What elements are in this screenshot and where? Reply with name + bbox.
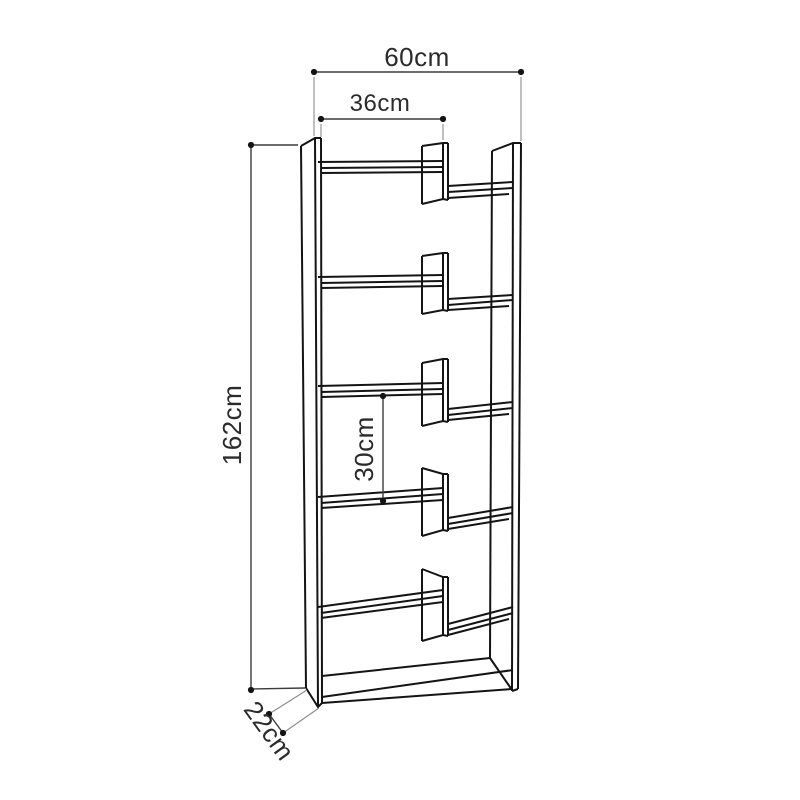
height-connector-bottom [251,688,305,689]
left-shelf-2 [318,275,443,288]
right-shelf-3 [448,402,513,420]
depth-extension-front [283,708,319,733]
right-shelf-5 [448,607,513,635]
left-panel-outer-edge [301,146,306,688]
bookcase-dimension-diagram: 60cm 36cm 162cm 30cm [0,0,800,800]
middle-dividers [422,143,448,641]
right-shelf-4 [448,507,513,529]
divider-1 [422,143,448,204]
divider-2 [422,253,448,314]
dimension-drawing-canvas: 60cm 36cm 162cm 30cm [0,0,800,800]
right-shelf-2 [448,295,513,310]
bottom-shelf [322,658,513,703]
width-dimension-label: 60cm [384,42,450,72]
height-dimension-label: 162cm [217,385,247,466]
left-shelf-4 [318,488,443,508]
left-panel-top-edge [301,138,321,146]
bottom-shelf-bottom-front-edge [322,689,512,703]
width-endpoint-dot-left [311,69,317,75]
width-endpoint-dot-right [518,69,524,75]
left-shelf-5 [318,590,443,618]
inner-width-endpoint-dot-right [440,116,446,122]
dimension-overall-width: 60cm [311,42,524,141]
spacing-endpoint-dot-bottom [380,498,386,504]
left-panel-mid-edge [315,138,318,707]
inner-width-endpoint-dot-left [318,116,324,122]
dimension-depth: 22cm [238,690,319,766]
right-shelves [448,182,513,635]
dimension-overall-height: 162cm [217,142,305,693]
dimension-shelf-spacing: 30cm [349,393,386,504]
depth-extension-back [269,690,307,714]
dimension-inner-width: 36cm [318,90,446,140]
spacing-dimension-label: 30cm [349,416,379,482]
right-panel-mid-edge [512,143,513,691]
bottom-shelf-top-back-edge [322,658,490,676]
right-shelf-1 [448,182,513,198]
spacing-endpoint-dot-top [380,393,386,399]
left-side-panel [301,138,322,707]
depth-dimension-label: 22cm [238,695,301,766]
left-shelf-1 [318,161,443,173]
bookcase-drawing [301,138,521,707]
height-endpoint-dot-bottom [248,687,254,693]
bottom-shelf-top-front-edge [322,670,513,697]
bottom-shelf-right-end-edge [490,658,512,690]
right-panel-outer-edge [518,143,521,689]
left-panel-bottom-edge [306,688,322,707]
left-shelves [318,161,443,618]
right-panel-top-edge [492,143,521,151]
height-endpoint-dot-top [248,142,254,148]
inner-width-dimension-label: 36cm [350,90,411,117]
divider-3 [422,359,448,426]
